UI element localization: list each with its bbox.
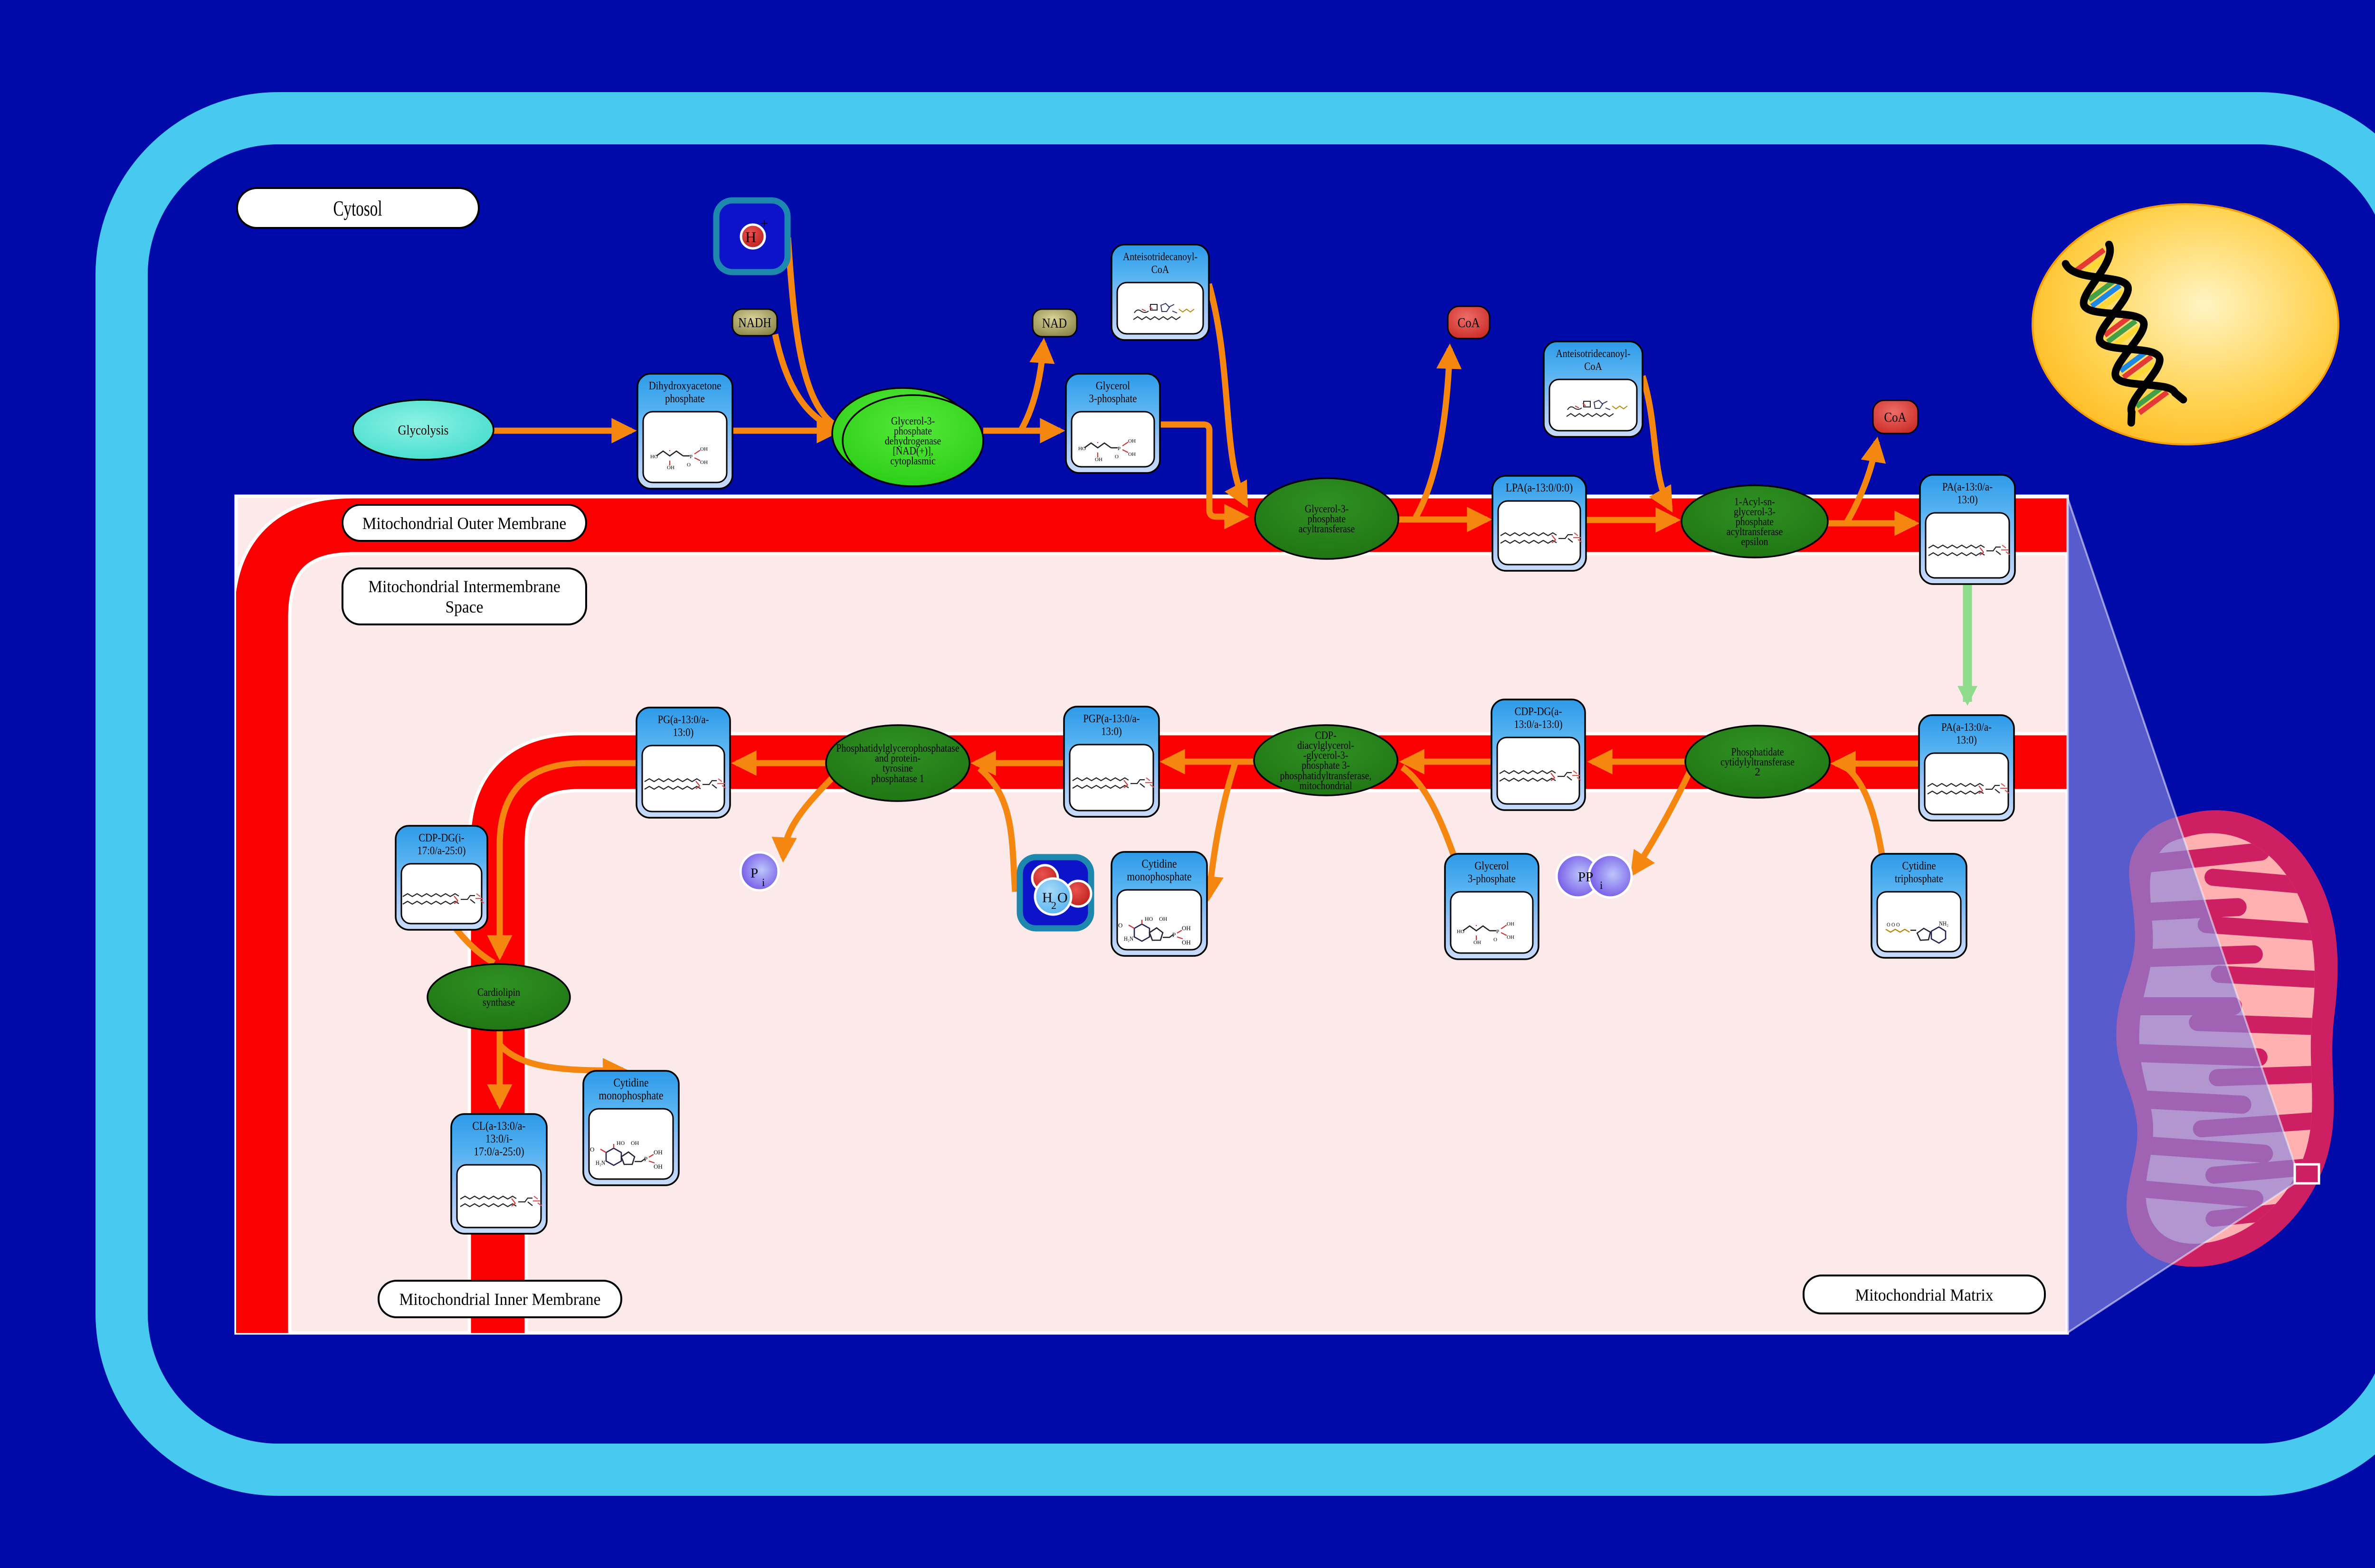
svg-text:synthase: synthase: [483, 996, 515, 1008]
svg-text:epsilon: epsilon: [1741, 536, 1768, 548]
svg-text:CDP-DG(i-: CDP-DG(i-: [418, 832, 464, 844]
svg-text:Mitochondrial Outer Membrane: Mitochondrial Outer Membrane: [362, 514, 567, 533]
svg-text:17:0/a-25:0): 17:0/a-25:0): [474, 1145, 524, 1158]
svg-text:17:0/a-25:0): 17:0/a-25:0): [418, 845, 466, 857]
svg-text:13:0): 13:0): [1956, 734, 1977, 746]
svg-text:Mitochondrial Intermembrane: Mitochondrial Intermembrane: [368, 577, 560, 596]
svg-text:+: +: [760, 216, 768, 231]
svg-text:Mitochondrial Inner Membrane: Mitochondrial Inner Membrane: [399, 1290, 601, 1309]
svg-text:13:0/i-: 13:0/i-: [485, 1133, 513, 1145]
svg-text:13:0): 13:0): [1101, 726, 1122, 738]
svg-text:Space: Space: [446, 597, 484, 616]
svg-text:NADH: NADH: [738, 316, 771, 331]
svg-text:PGP(a-13:0/a-: PGP(a-13:0/a-: [1083, 713, 1140, 725]
svg-text:i: i: [1600, 879, 1603, 891]
svg-text:mitochondrial: mitochondrial: [1300, 780, 1352, 792]
svg-text:Cytidine: Cytidine: [613, 1077, 648, 1089]
svg-text:O: O: [1057, 890, 1068, 906]
svg-text:i: i: [762, 877, 765, 888]
svg-text:H: H: [745, 228, 756, 246]
svg-text:acyltransferase: acyltransferase: [1299, 523, 1355, 535]
svg-text:NAD: NAD: [1042, 316, 1067, 331]
svg-text:CoA: CoA: [1584, 360, 1602, 372]
svg-text:Cytidine: Cytidine: [1902, 860, 1936, 872]
svg-text:PA(a-13:0/a-: PA(a-13:0/a-: [1941, 721, 1992, 734]
svg-text:2: 2: [1755, 766, 1760, 778]
svg-text:CoA: CoA: [1457, 315, 1480, 331]
svg-text:CoA: CoA: [1884, 410, 1906, 425]
svg-text:2: 2: [1051, 899, 1056, 911]
svg-text:Cytosol: Cytosol: [333, 196, 382, 220]
svg-text:phosphate: phosphate: [665, 393, 705, 405]
svg-text:PP: PP: [1578, 869, 1593, 885]
svg-text:13:0): 13:0): [1957, 494, 1978, 506]
svg-text:monophosphate: monophosphate: [598, 1089, 663, 1102]
svg-text:13:0): 13:0): [673, 727, 694, 739]
svg-text:13:0/a-13:0): 13:0/a-13:0): [1514, 718, 1563, 731]
svg-text:PG(a-13:0/a-: PG(a-13:0/a-: [658, 714, 709, 726]
svg-text:Glycerol: Glycerol: [1096, 380, 1130, 392]
svg-text:Glycerol: Glycerol: [1474, 860, 1509, 872]
svg-text:Mitochondrial Matrix: Mitochondrial Matrix: [1855, 1285, 1994, 1304]
svg-text:cytoplasmic: cytoplasmic: [890, 455, 936, 467]
svg-text:Anteisotridecanoyl-: Anteisotridecanoyl-: [1556, 348, 1630, 359]
svg-text:3-phosphate: 3-phosphate: [1089, 393, 1137, 405]
svg-text:CDP-DG(a-: CDP-DG(a-: [1515, 706, 1562, 718]
svg-text:LPA(a-13:0/0:0): LPA(a-13:0/0:0): [1506, 482, 1573, 494]
svg-text:PA(a-13:0/a-: PA(a-13:0/a-: [1942, 481, 1993, 493]
svg-text:Anteisotridecanoyl-: Anteisotridecanoyl-: [1123, 251, 1197, 263]
svg-text:Dihydroxyacetone: Dihydroxyacetone: [649, 380, 722, 392]
svg-text:Cytidine: Cytidine: [1141, 858, 1177, 870]
svg-text:phosphatase 1: phosphatase 1: [871, 773, 924, 784]
svg-text:Glycolysis: Glycolysis: [398, 423, 449, 438]
svg-text:monophosphate: monophosphate: [1127, 870, 1191, 883]
svg-text:triphosphate: triphosphate: [1895, 873, 1943, 885]
svg-text:P: P: [750, 866, 758, 881]
svg-text:CL(a-13:0/a-: CL(a-13:0/a-: [472, 1120, 525, 1133]
svg-text:3-phosphate: 3-phosphate: [1468, 873, 1516, 885]
svg-text:CoA: CoA: [1151, 264, 1169, 275]
